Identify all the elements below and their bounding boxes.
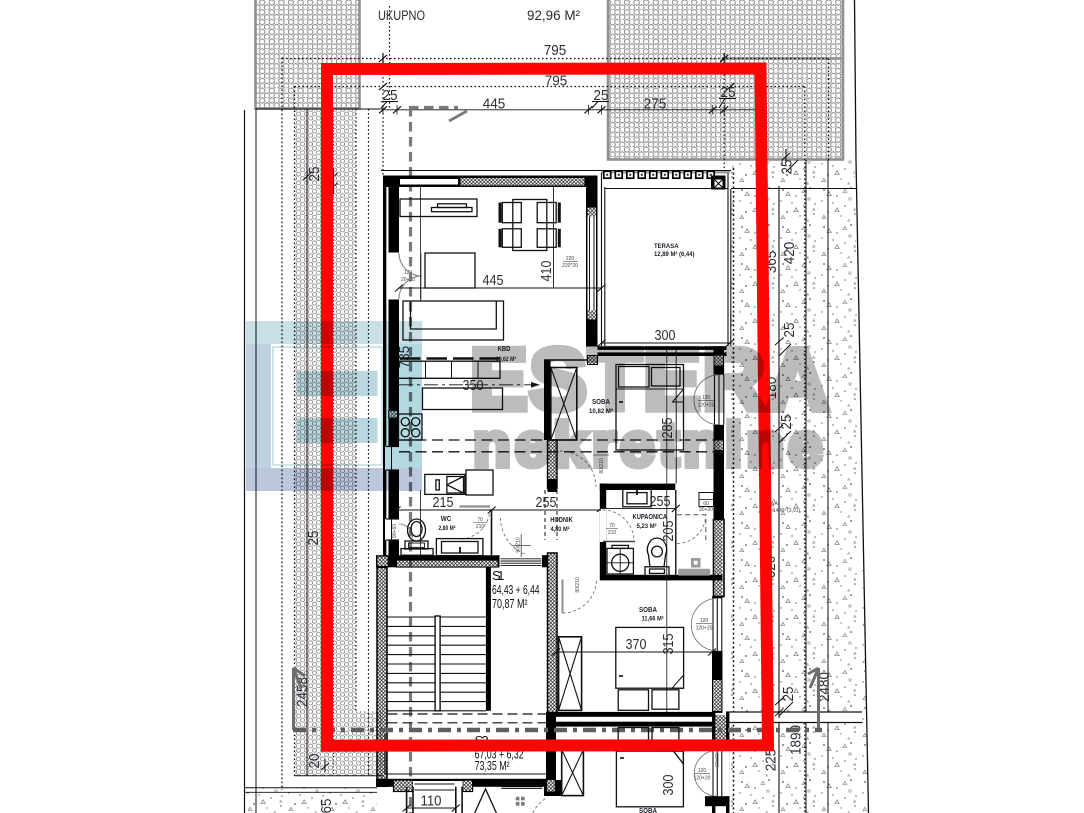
svg-text:110: 110 bbox=[421, 794, 442, 810]
svg-text:210: 210 bbox=[608, 530, 617, 536]
svg-text:120+20: 120+20 bbox=[696, 626, 713, 632]
svg-text:225: 225 bbox=[763, 749, 780, 772]
svg-text:WC: WC bbox=[441, 516, 452, 523]
svg-text:120: 120 bbox=[698, 768, 707, 774]
svg-text:255: 255 bbox=[650, 494, 671, 510]
svg-text:2458: 2458 bbox=[294, 677, 311, 707]
svg-text:UKUPNO: UKUPNO bbox=[378, 8, 425, 23]
svg-text:120: 120 bbox=[700, 618, 709, 624]
svg-text:SOBA: SOBA bbox=[639, 808, 657, 813]
svg-text:2,80 M²: 2,80 M² bbox=[439, 525, 457, 532]
svg-text:300: 300 bbox=[661, 775, 677, 796]
svg-text:11,66 M²: 11,66 M² bbox=[642, 616, 665, 623]
svg-text:255: 255 bbox=[536, 495, 557, 511]
svg-text:60x60: 60x60 bbox=[715, 753, 721, 767]
svg-text:4,80 M²: 4,80 M² bbox=[551, 526, 571, 533]
svg-text:120+20: 120+20 bbox=[694, 776, 711, 782]
svg-text:90/210: 90/210 bbox=[516, 537, 522, 553]
svg-text:275: 275 bbox=[644, 96, 667, 113]
svg-text:65: 65 bbox=[318, 799, 335, 813]
svg-text:73,35 M²: 73,35 M² bbox=[475, 758, 510, 773]
svg-text:5,23 M²: 5,23 M² bbox=[637, 523, 658, 530]
svg-text:370: 370 bbox=[626, 637, 647, 653]
svg-text:92,96 M²: 92,96 M² bbox=[527, 8, 580, 23]
svg-text:420: 420 bbox=[781, 242, 798, 265]
svg-text:TERASA: TERASA bbox=[654, 243, 679, 250]
svg-text:70,87 M²: 70,87 M² bbox=[492, 596, 528, 611]
svg-text:445: 445 bbox=[483, 273, 504, 289]
svg-text:90+20: 90+20 bbox=[699, 507, 713, 513]
svg-text:12,89 M² (6,44): 12,89 M² (6,44) bbox=[654, 251, 695, 258]
svg-text:S1: S1 bbox=[492, 568, 505, 583]
svg-text:70: 70 bbox=[477, 517, 483, 523]
svg-text:215: 215 bbox=[433, 495, 454, 511]
svg-text:64,43 + 6,44: 64,43 + 6,44 bbox=[492, 582, 540, 597]
svg-text:25: 25 bbox=[779, 160, 796, 175]
svg-text:220: 220 bbox=[566, 256, 575, 262]
svg-text:HODNIK: HODNIK bbox=[550, 517, 573, 524]
svg-text:210: 210 bbox=[476, 524, 485, 530]
svg-text:nekretnine: nekretnine bbox=[473, 411, 827, 480]
svg-text:795: 795 bbox=[545, 73, 568, 90]
svg-text:25: 25 bbox=[780, 687, 797, 702]
svg-text:25: 25 bbox=[306, 167, 323, 182]
svg-text:80/210: 80/210 bbox=[575, 577, 581, 593]
svg-text:70: 70 bbox=[609, 523, 615, 529]
svg-text:205: 205 bbox=[661, 521, 677, 542]
svg-text:795: 795 bbox=[544, 42, 567, 59]
svg-text:445: 445 bbox=[483, 96, 506, 113]
svg-text:25: 25 bbox=[305, 531, 322, 546]
svg-text:315: 315 bbox=[661, 634, 677, 655]
svg-text:KUPAONICA: KUPAONICA bbox=[633, 514, 668, 521]
svg-text:20: 20 bbox=[306, 754, 323, 769]
svg-text:220*20: 220*20 bbox=[562, 263, 578, 269]
svg-text:90+60: 90+60 bbox=[392, 524, 398, 538]
svg-text:410: 410 bbox=[539, 261, 555, 282]
svg-text:SOBA: SOBA bbox=[639, 607, 657, 614]
